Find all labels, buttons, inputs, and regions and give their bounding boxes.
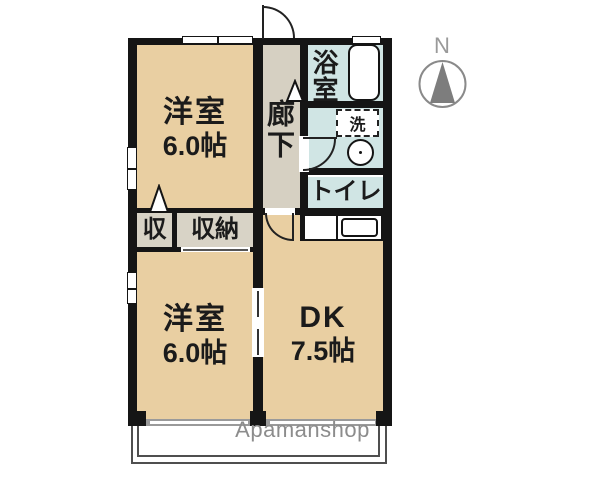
closet-small-label: 収	[137, 214, 172, 246]
wall-left	[128, 38, 137, 419]
closet-large-label: 収納	[177, 214, 253, 246]
sliding-door-line	[183, 249, 248, 251]
bottom-post-left	[128, 411, 146, 426]
sliding-door-line	[257, 329, 259, 355]
closet-door-symbol	[147, 184, 171, 214]
wall-right	[383, 38, 392, 419]
watermark: Apamanshop	[215, 417, 390, 443]
room-name: DK	[263, 301, 383, 335]
laundry-label: 洗	[349, 111, 365, 135]
washbasin-drain-dot	[359, 151, 362, 154]
entrance-door-swing	[263, 6, 295, 38]
window-top-bedroom	[182, 36, 253, 44]
room-size: 6.0帖	[137, 337, 253, 369]
floor-plan: 洗	[0, 0, 600, 480]
sliding-door-line	[257, 291, 259, 317]
bathtub	[348, 44, 380, 101]
window-mullion	[128, 288, 136, 290]
dk-label: DK 7.5帖	[263, 301, 383, 367]
wall-counter-stub	[300, 213, 305, 241]
washing-machine-slot: 洗	[336, 109, 379, 137]
hallway-label: 廊下	[261, 88, 299, 172]
counter-divider	[336, 216, 338, 239]
toilet-label: トイレ	[308, 176, 383, 208]
window-mullion	[128, 168, 136, 170]
room-name: 洋室	[137, 303, 253, 337]
room-size: 7.5帖	[263, 335, 383, 367]
window-top-bath	[352, 36, 381, 44]
compass-icon	[418, 58, 467, 110]
window-left-bedroom-top	[127, 147, 137, 190]
bedroom-bottom-label: 洋室 6.0帖	[137, 303, 253, 369]
bedroom-top-label: 洋室 6.0帖	[137, 96, 253, 162]
room-name: 洋室	[137, 96, 253, 130]
kitchen-sink	[341, 218, 378, 237]
closet-sliding-door	[181, 247, 250, 252]
bathroom-label: 浴室	[307, 46, 343, 106]
window-mullion	[217, 37, 219, 43]
room-size: 6.0帖	[137, 130, 253, 162]
window-left-bedroom-bottom	[127, 272, 137, 304]
compass: N	[415, 30, 471, 112]
compass-n-label: N	[427, 33, 457, 59]
